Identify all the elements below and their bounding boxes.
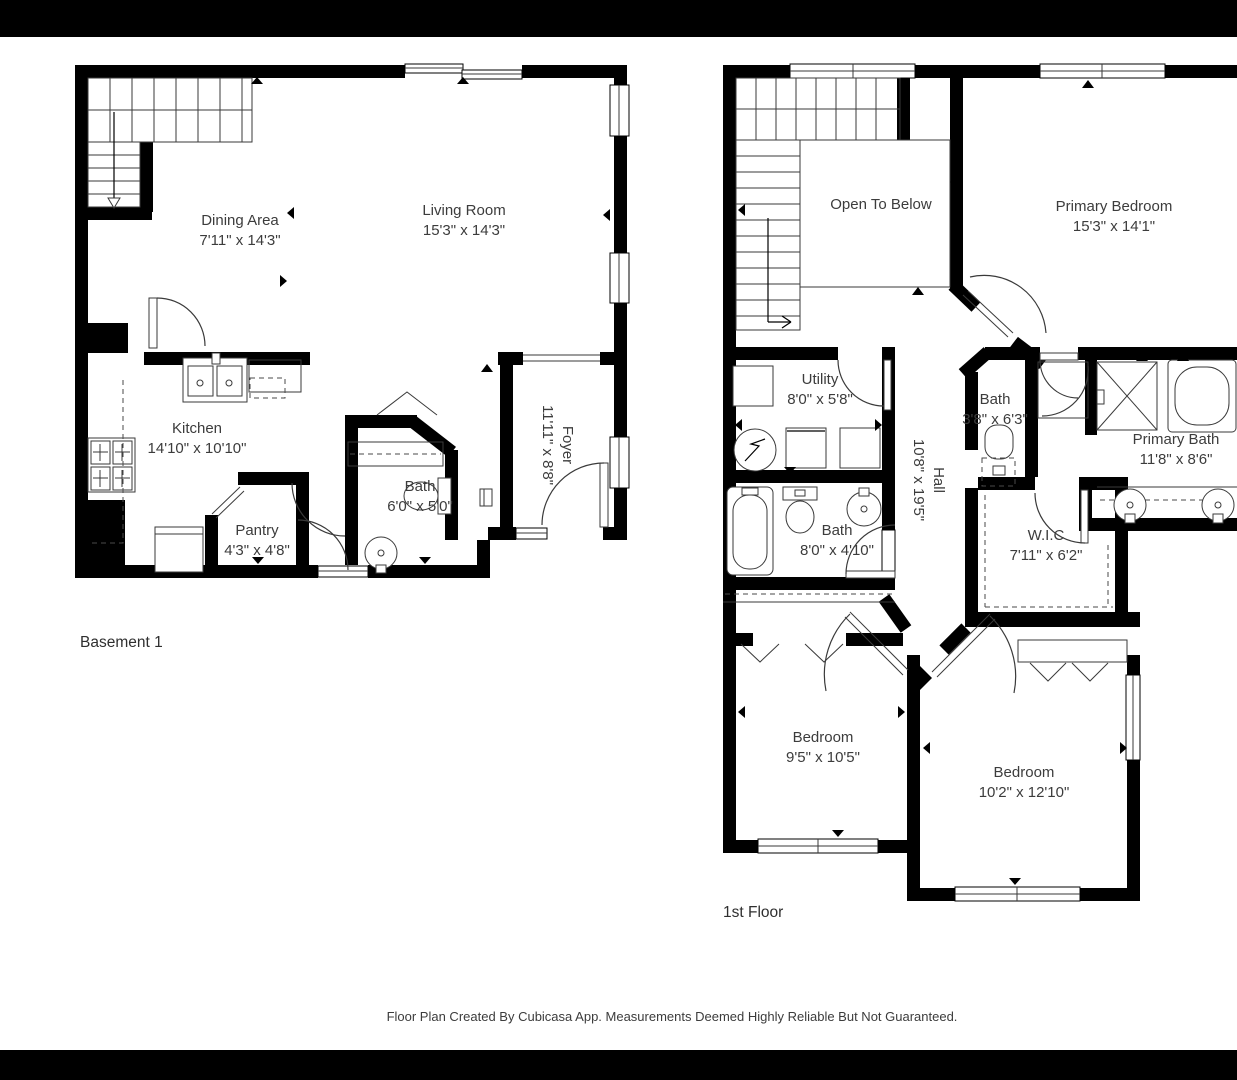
room-label-kitchen: Kitchen 14'10" x 10'10" xyxy=(148,419,247,459)
basement-plan-title: Basement 1 xyxy=(80,634,163,652)
basement-plan-drawing xyxy=(75,64,629,578)
dryer-icon xyxy=(840,428,880,468)
room-label-pantry: Pantry 4'3" x 4'8" xyxy=(224,521,290,561)
room-label-dining-area: Dining Area 7'11" x 14'3" xyxy=(199,211,280,251)
shower-icon xyxy=(1097,362,1157,430)
kitchen-sink-icon xyxy=(183,353,301,402)
bathtub-icon xyxy=(727,487,773,575)
room-label-hall-bath: Bath 8'0" x 4'10" xyxy=(800,521,874,561)
room-label-basement-bath: Bath 6'0" x 5'0" xyxy=(387,477,453,517)
room-label-bedroom-2: Bedroom 10'2" x 12'10" xyxy=(979,763,1070,803)
basement-windows xyxy=(318,64,629,577)
stove-icon xyxy=(88,438,135,492)
room-label-foyer: Foyer 11'11" x 8'8" xyxy=(537,405,577,485)
floor-plan-page: Dining Area 7'11" x 14'3" Living Room 15… xyxy=(0,0,1237,1080)
room-label-primary-bath: Primary Bath 11'8" x 8'6" xyxy=(1133,430,1220,470)
room-label-hall: Hall 10'8" x 19'5" xyxy=(908,439,948,521)
room-label-open-to-below: Open To Below xyxy=(830,195,931,215)
room-label-living-room: Living Room 15'3" x 14'3" xyxy=(422,201,505,241)
toilet-icon xyxy=(982,425,1015,486)
basement-stairs-icon xyxy=(88,78,252,208)
bedroom-closet-icons xyxy=(741,640,1127,681)
first-floor-plan-title: 1st Floor xyxy=(723,904,783,922)
bathtub-icon xyxy=(1168,360,1236,432)
room-label-bedroom-1: Bedroom 9'5" x 10'5" xyxy=(786,728,860,768)
vanity-sink-icon xyxy=(1202,489,1234,523)
cubicasa-disclaimer-caption: Floor Plan Created By Cubicasa App. Meas… xyxy=(387,1009,958,1024)
water-heater-icon xyxy=(734,429,776,471)
room-label-wic: W.I.C 7'11" x 6'2" xyxy=(1010,526,1083,566)
corner-shower-icon xyxy=(1038,362,1088,418)
room-label-small-bath: Bath 3'8" x 6'3" xyxy=(962,390,1028,430)
room-label-primary-bedroom: Primary Bedroom 15'3" x 14'1" xyxy=(1056,197,1173,237)
washer-icon xyxy=(786,428,826,468)
room-label-utility: Utility 8'0" x 5'8" xyxy=(787,370,853,410)
